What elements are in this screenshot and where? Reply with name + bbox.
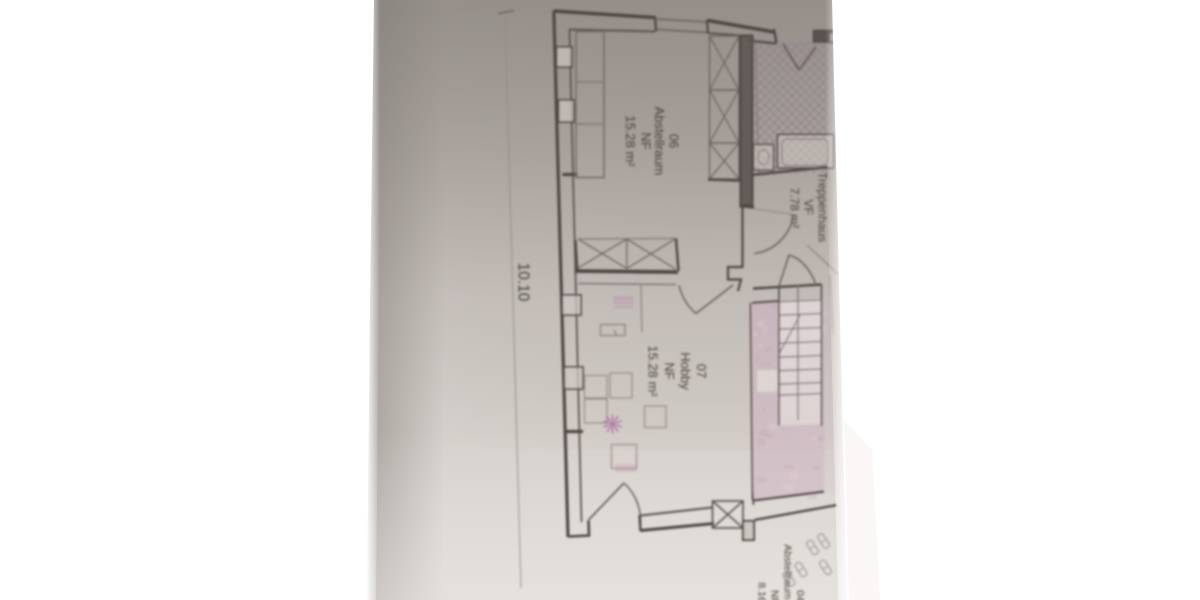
svg-text:8.16 m²: 8.16 m² (756, 582, 768, 600)
svg-text:10.10: 10.10 (515, 263, 532, 302)
svg-text:VF: VF (802, 199, 816, 214)
svg-text:07: 07 (694, 364, 709, 378)
svg-text:Hobby: Hobby (678, 352, 693, 390)
svg-text:NF: NF (769, 590, 781, 600)
svg-text:04: 04 (794, 590, 806, 600)
svg-text:Abstellraum (Fahrräder): Abstellraum (Fahrräder) (782, 544, 794, 600)
svg-text:NF: NF (639, 132, 654, 149)
svg-text:06: 06 (667, 134, 682, 148)
svg-text:15.28 m²: 15.28 m² (623, 115, 638, 167)
svg-text:NF: NF (662, 362, 677, 379)
svg-text:7.78 m²: 7.78 m² (788, 188, 802, 229)
svg-text:15.28 m²: 15.28 m² (646, 345, 661, 397)
